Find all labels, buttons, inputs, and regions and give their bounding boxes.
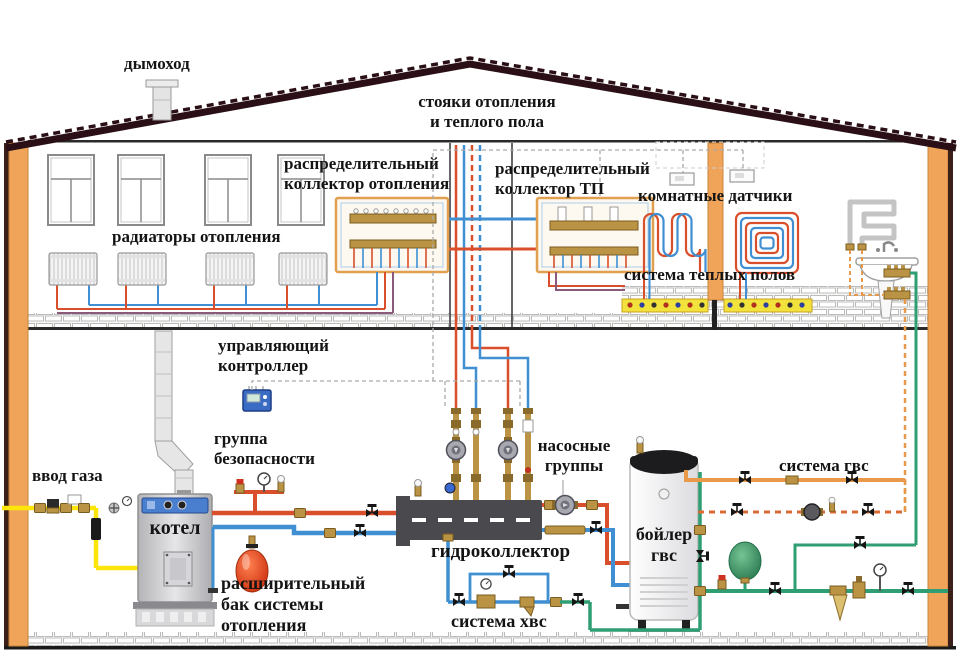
- label-expansion-tank: расширительный бак системы отопления: [221, 573, 365, 636]
- label-collector-tp: распределительный коллектор ТП: [495, 159, 650, 198]
- label-collector-heating: распределительный коллектор отопления: [284, 154, 449, 193]
- label-pump-groups: насосные группы: [532, 436, 616, 475]
- pump-group-2: [499, 408, 534, 500]
- label-risers: стояки отопления и теплого пола: [407, 92, 567, 131]
- heating-system-diagram: дымоход стояки отопления и теплого пола …: [0, 0, 962, 654]
- label-chimney: дымоход: [124, 54, 190, 74]
- collector-heating-box: [336, 198, 448, 272]
- bathroom: [846, 202, 918, 545]
- label-controller: управляющий контроллер: [218, 336, 329, 375]
- ground-floor-slab: [4, 632, 956, 650]
- boiler-unit: [133, 490, 217, 626]
- label-radiators: радиаторы отопления: [112, 227, 281, 247]
- label-dhw-system: система гвс: [779, 456, 869, 476]
- label-room-sensors: комнатные датчики: [638, 186, 792, 206]
- left-wall: [4, 143, 28, 646]
- label-warm-floor: система теплых полов: [624, 265, 795, 285]
- recirculation-line: [698, 497, 905, 520]
- hydrocollector-unit: [396, 480, 542, 547]
- windows: [48, 155, 324, 225]
- controller-wiring: [252, 381, 520, 408]
- label-dhw-boiler: бойлер гвс: [630, 524, 698, 566]
- radiators: [49, 253, 327, 285]
- label-boiler: котел: [140, 517, 210, 540]
- label-hydrocollector: гидроколлектор: [431, 541, 570, 563]
- risers-to-pumps: [456, 330, 528, 412]
- pump-group-1: [445, 408, 481, 500]
- label-gas-inlet: ввод газа: [32, 466, 103, 486]
- ceiling-line: [28, 140, 928, 143]
- right-wall: [928, 143, 953, 646]
- label-safety-group: группа безопасности: [214, 429, 315, 468]
- controller-unit: [243, 386, 271, 411]
- safety-group-unit: [234, 473, 285, 513]
- label-cold-water-system: система хвс: [451, 611, 547, 632]
